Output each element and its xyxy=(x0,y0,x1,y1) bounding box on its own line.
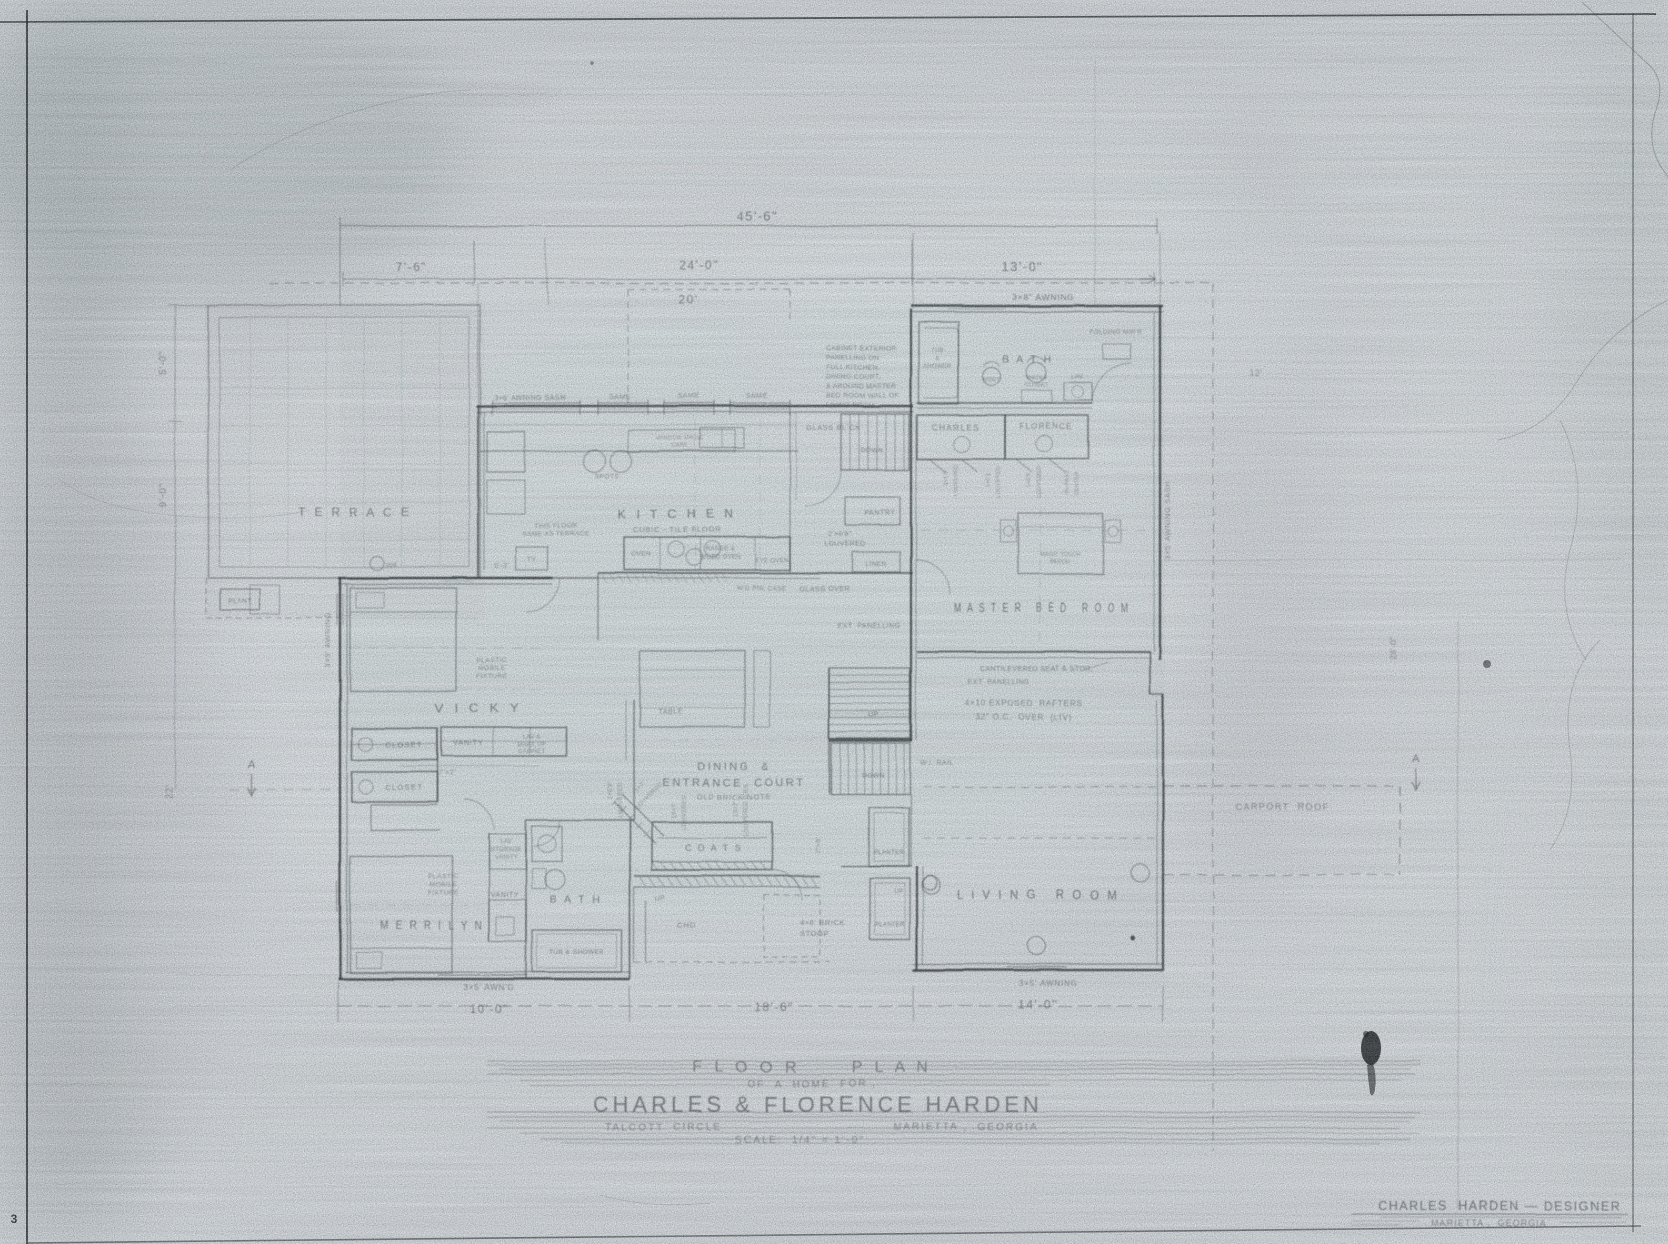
svg-text:24'-0": 24'-0" xyxy=(679,258,719,272)
svg-text:A: A xyxy=(1412,753,1420,765)
svg-text:10'-0": 10'-0" xyxy=(469,1002,509,1016)
svg-text:13'-0": 13'-0" xyxy=(1001,259,1043,274)
svg-text:14'-0": 14'-0" xyxy=(1018,997,1058,1011)
svg-text:A: A xyxy=(248,759,256,771)
svg-text:5'-0": 5'-0" xyxy=(158,351,169,376)
svg-text:22': 22' xyxy=(164,785,174,800)
svg-text:9'-0": 9'-0" xyxy=(158,483,169,508)
svg-text:CHARLES HARDEN — DESIGNER: CHARLES HARDEN — DESIGNER xyxy=(1379,1199,1622,1213)
svg-text:3×5' AWNING: 3×5' AWNING xyxy=(323,612,332,667)
svg-text:12': 12' xyxy=(1249,368,1262,378)
svg-text:18'-6": 18'-6" xyxy=(754,1000,794,1014)
svg-text:28'-0": 28'-0" xyxy=(1389,636,1398,659)
svg-text:MARIETTA , GEORGIA: MARIETTA , GEORGIA xyxy=(1431,1218,1546,1228)
svg-text:SCALE: 1/4" = 1'-0": SCALE: 1/4" = 1'-0" xyxy=(735,1135,865,1146)
svg-text:MARIETTA , GEORGIA: MARIETTA , GEORGIA xyxy=(893,1122,1038,1133)
svg-text:CARPORT ROOF: CARPORT ROOF xyxy=(1236,802,1330,812)
svg-text:45'-6": 45'-6" xyxy=(736,209,778,224)
svg-text:TALCOTT CIRCLE: TALCOTT CIRCLE xyxy=(606,1122,723,1133)
svg-text:3: 3 xyxy=(11,1212,18,1226)
svg-text:7'-6": 7'-6" xyxy=(395,260,426,274)
